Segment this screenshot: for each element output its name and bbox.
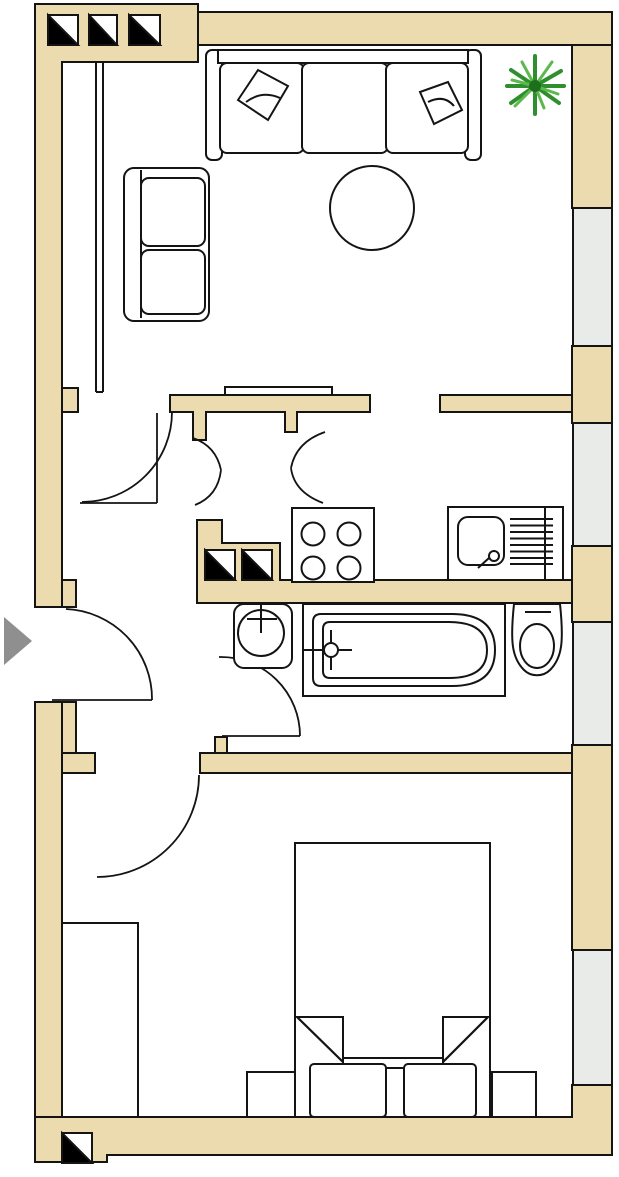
wardrobe	[62, 923, 138, 1117]
wall-cupboard	[225, 387, 332, 395]
shaft-symbol	[48, 15, 78, 45]
entrance-door-arc	[66, 609, 152, 700]
bathroom-fixtures	[234, 604, 562, 696]
living-room-window	[573, 208, 612, 346]
wall-divider-right	[440, 395, 572, 412]
wall-tab-living	[62, 388, 78, 412]
living-room-furniture	[124, 50, 481, 321]
bathtub	[303, 604, 505, 696]
wall-top	[198, 12, 612, 45]
wall-right-pier-1	[572, 45, 612, 208]
round-table	[330, 166, 414, 250]
burner	[302, 523, 325, 546]
shaft-symbol	[129, 15, 160, 45]
wall-bedroom-band-right	[200, 753, 572, 773]
windows	[573, 208, 612, 1085]
toilet	[512, 604, 562, 675]
wall-right-pier-3	[572, 546, 612, 622]
nightstand-right	[492, 1072, 536, 1117]
hall-swing-door-left	[193, 438, 221, 505]
shaft-symbol	[205, 550, 235, 580]
shaft-symbol	[62, 1133, 92, 1163]
living-room-door-arc	[82, 412, 172, 502]
three-seat-sofa	[206, 50, 481, 160]
pillow-right	[404, 1064, 476, 1117]
hall-swing-door-right	[291, 432, 325, 503]
kitchen-window	[573, 423, 612, 546]
wash-basin	[234, 604, 292, 668]
kitchen-fixtures	[292, 507, 563, 582]
wall-right-pier-2	[572, 346, 612, 423]
sink-faucet	[489, 551, 499, 561]
tub-faucet	[324, 643, 338, 657]
wall-right-pier-4	[572, 745, 612, 950]
stove	[292, 508, 374, 582]
double-bed	[295, 843, 490, 1117]
bedroom-furniture	[247, 843, 536, 1117]
floor-plan-drawing: Apartment floor plan	[0, 0, 619, 1177]
burner	[302, 557, 325, 580]
potted-plant	[507, 56, 564, 114]
bedroom-door-arc	[97, 775, 199, 877]
shaft-symbol	[242, 550, 272, 580]
living-west-partition	[96, 62, 103, 392]
wall-tab-entry-top	[62, 580, 76, 607]
living-room-door-leaf	[80, 413, 157, 503]
two-seat-sofa	[124, 168, 209, 321]
wall-divider-left	[170, 395, 370, 440]
entry-arrow-icon	[4, 617, 32, 665]
bedroom-window	[573, 950, 612, 1085]
wall-bedroom-band-left	[62, 753, 95, 773]
kitchen-sink	[448, 507, 563, 580]
burner	[338, 523, 361, 546]
pillow-left	[310, 1064, 386, 1117]
burner	[338, 557, 361, 580]
wall-left-lower	[35, 702, 62, 1117]
wall-tab-entry-bottom	[62, 702, 76, 753]
bathroom-window	[573, 622, 612, 745]
floor-plan-page: Apartment floor plan Apartment floor pla…	[0, 0, 619, 1177]
shaft-symbol	[89, 15, 117, 45]
nightstand-left	[247, 1072, 295, 1117]
